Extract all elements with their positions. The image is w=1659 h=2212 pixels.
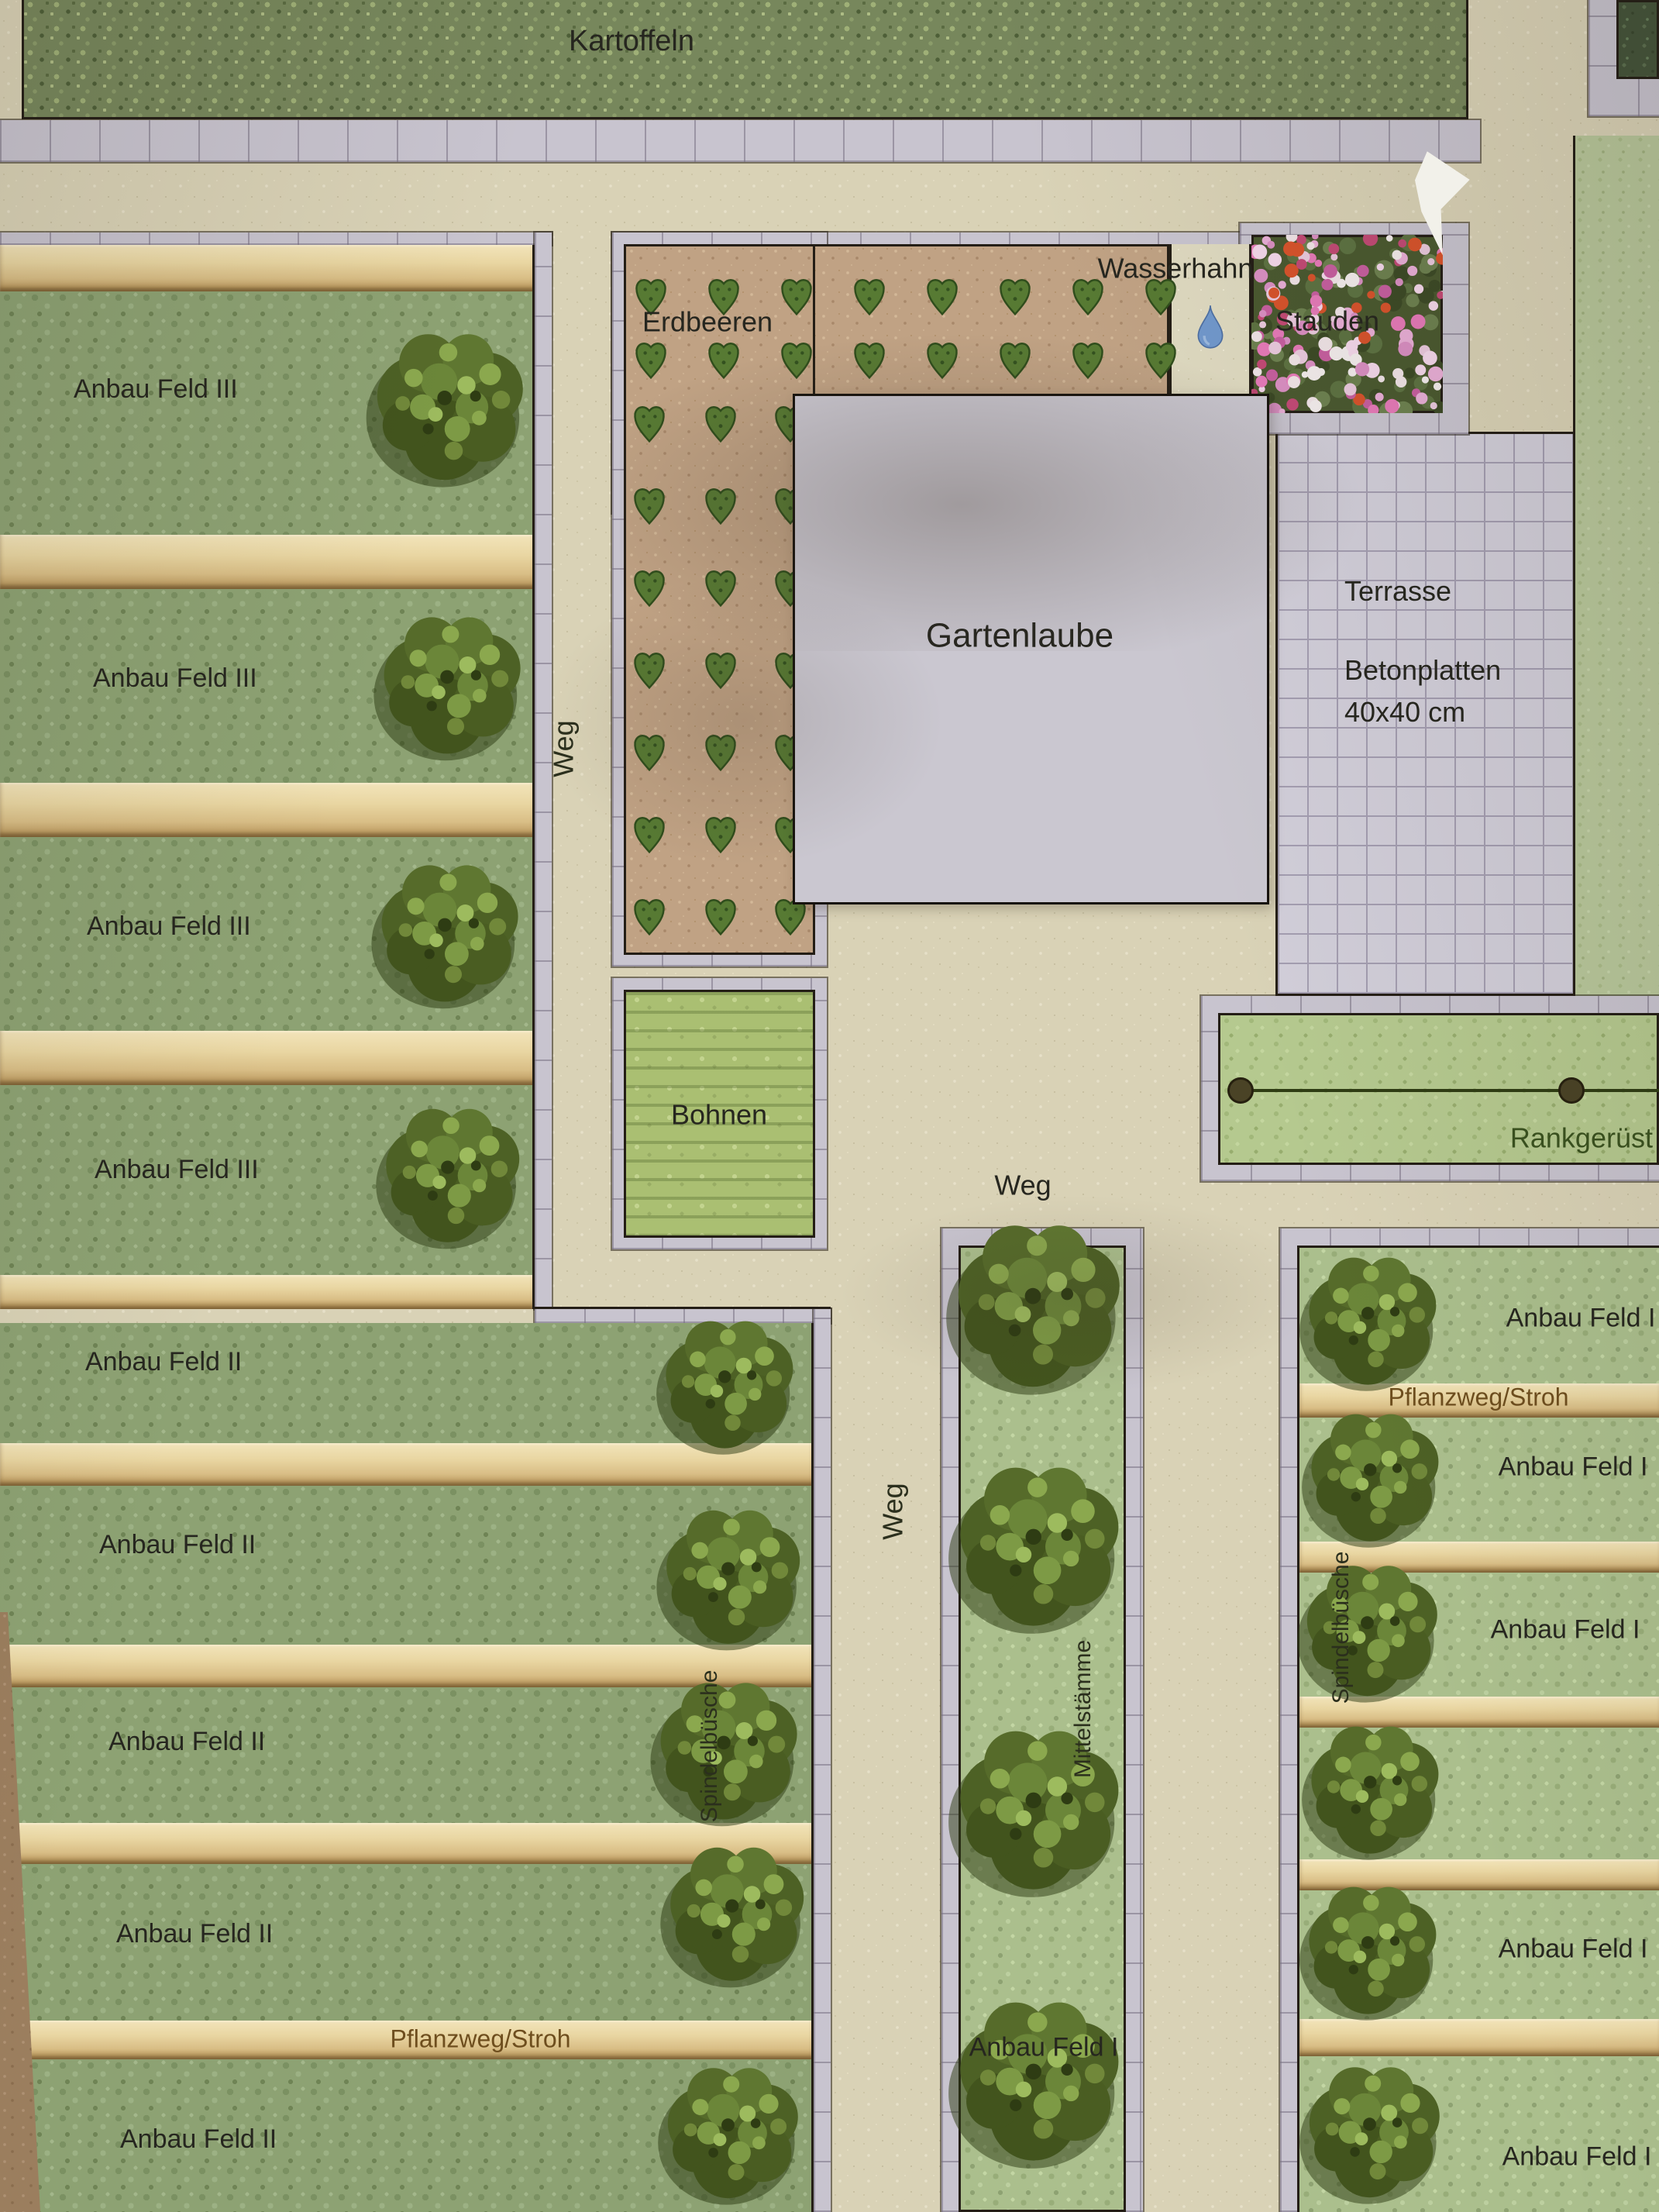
left-block-row xyxy=(0,1031,535,1085)
kartoffeln-paver-walk xyxy=(0,120,1480,162)
path-label-weg: Weg xyxy=(547,720,579,777)
path-label-weg: Weg xyxy=(994,1169,1051,1201)
bed-label-rankgeruest: Rankgerüst xyxy=(1510,1122,1653,1153)
strawberry-plant-icon xyxy=(923,339,962,381)
strawberry-plant-icon xyxy=(777,275,816,317)
bed-label-stauden: Stauden xyxy=(1275,305,1379,336)
field-row-label: Anbau Feld I xyxy=(1506,1303,1656,1333)
field-row-label: Anbau Feld I xyxy=(1499,1934,1648,1964)
bush-icon xyxy=(1296,1868,1455,2027)
left-block-paver-top xyxy=(0,233,552,245)
bush-icon xyxy=(1296,1239,1455,1397)
strawberry-plant-icon xyxy=(701,731,740,773)
bush-icon xyxy=(370,597,541,767)
strawberry-plant-icon xyxy=(630,402,669,444)
left-block-row xyxy=(0,245,535,291)
bush-icon xyxy=(942,1201,1144,1403)
strawberry-plant-icon xyxy=(632,339,670,381)
trees-label-spindelbuesche: Spindelbüsche xyxy=(697,1670,724,1823)
bush-icon xyxy=(1299,1395,1458,1554)
bush-icon xyxy=(945,1444,1142,1642)
bush-icon xyxy=(368,845,539,1015)
label-wasserhahn: Wasserhahn xyxy=(1098,252,1254,284)
trees-label-mittelstaemme: Mittelstämme xyxy=(1070,1640,1097,1778)
strawberry-plant-icon xyxy=(630,649,669,691)
trellis-post-icon xyxy=(1558,1077,1585,1104)
field-row-label: Anbau Feld I xyxy=(1502,2141,1652,2172)
field-row-label: Anbau Feld II xyxy=(120,2124,277,2155)
field-row-label: Anbau Feld II xyxy=(85,1347,242,1377)
strawberry-plant-icon xyxy=(701,649,740,691)
bed-label-erdbeeren: Erdbeeren xyxy=(642,305,773,337)
strawberry-plant-icon xyxy=(701,402,740,444)
field-row-label: Anbau Feld I xyxy=(1499,1452,1648,1482)
field-row-label: Anbau Feld III xyxy=(74,374,238,405)
field-label-kartoffeln: Kartoffeln xyxy=(569,25,694,59)
trellis-post-icon xyxy=(1227,1077,1254,1104)
terrace-label: Terrasse xyxy=(1344,575,1451,607)
bush-icon xyxy=(1294,1546,1457,1709)
field-row-label: Anbau Feld II xyxy=(116,1919,273,1949)
strawberry-plant-icon xyxy=(996,275,1034,317)
field-row-label: Anbau Feld II xyxy=(108,1727,265,1757)
strawberry-plant-icon xyxy=(701,484,740,526)
field-row-label: Anbau Feld I xyxy=(969,2032,1119,2062)
strawberry-plant-icon xyxy=(630,484,669,526)
field-kartoffeln xyxy=(22,0,1468,119)
strawberry-plant-icon xyxy=(850,275,889,317)
bush-icon xyxy=(655,2048,817,2211)
bush-icon xyxy=(653,1302,812,1461)
left-block-row xyxy=(0,535,535,589)
bush-icon xyxy=(653,1490,820,1657)
top-right-bed xyxy=(1616,0,1659,79)
strawberry-plant-icon xyxy=(630,813,669,855)
garden-allotment-plan: Gartenlaube Anbau Feld IIIAnbau Feld III… xyxy=(0,0,1659,2212)
strawberry-plant-icon xyxy=(996,339,1034,381)
strawberry-plant-icon xyxy=(630,731,669,773)
pflanzweg-label: Pflanzweg/Stroh xyxy=(390,2025,570,2054)
pflanzweg-label: Pflanzweg/Stroh xyxy=(1388,1383,1568,1412)
strawberry-plant-icon xyxy=(701,813,740,855)
field-strip-right-edge xyxy=(1573,136,1659,996)
building-label: Gartenlaube xyxy=(926,617,1113,656)
bush-icon xyxy=(647,1662,817,1833)
path-label-weg: Weg xyxy=(876,1483,908,1539)
field-row-label: Anbau Feld II xyxy=(99,1530,256,1560)
strawberry-plant-icon xyxy=(701,895,740,937)
bush-icon xyxy=(373,1089,539,1256)
trees-label-spindelbuesche: Spindelbüsche xyxy=(1328,1552,1355,1704)
field-row-label: Anbau Feld III xyxy=(93,663,257,694)
trellis-wire xyxy=(1236,1089,1659,1092)
terrace-size-label: 40x40 cm xyxy=(1344,696,1465,728)
bush-icon xyxy=(1296,2048,1459,2210)
strawberry-plant-icon xyxy=(630,567,669,608)
bush-icon xyxy=(945,1979,1142,2176)
strawberry-plant-icon xyxy=(630,895,669,937)
bush-icon xyxy=(1299,1707,1458,1866)
field-row-label: Anbau Feld III xyxy=(87,911,251,942)
terrace-material-label: Betonplatten xyxy=(1344,654,1501,686)
field-row-label: Anbau Feld III xyxy=(95,1155,259,1185)
left-block-row xyxy=(0,783,535,837)
strawberry-plant-icon xyxy=(701,567,740,608)
strawberry-plant-icon xyxy=(923,275,962,317)
building-gartenlaube: Gartenlaube xyxy=(793,394,1269,904)
strawberry-plant-icon xyxy=(850,339,889,381)
strawberry-plant-icon xyxy=(704,339,743,381)
strawberry-plant-icon xyxy=(1069,339,1107,381)
left-block-row xyxy=(0,1275,535,1309)
water-drop-icon xyxy=(1196,305,1225,350)
bush-icon xyxy=(363,312,545,494)
bed-label-bohnen: Bohnen xyxy=(671,1098,767,1130)
strawberry-plant-icon xyxy=(777,339,816,381)
bush-icon xyxy=(657,1828,824,1994)
field-row-label: Anbau Feld I xyxy=(1491,1614,1640,1645)
bush-icon xyxy=(945,1707,1142,1905)
strawberry-plant-icon xyxy=(1141,339,1180,381)
